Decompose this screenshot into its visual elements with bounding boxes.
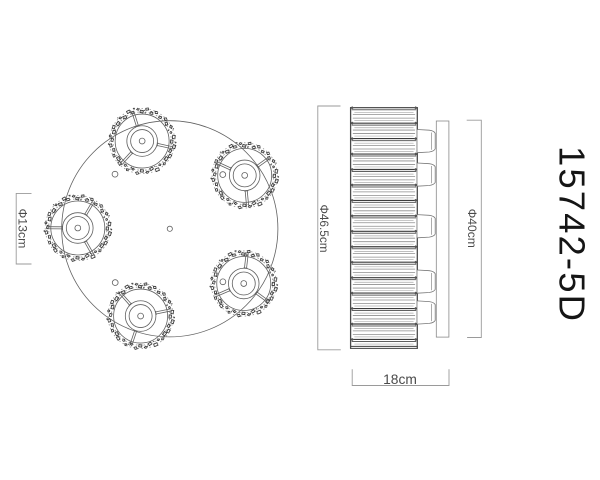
svg-text:Φ46.5cm: Φ46.5cm — [317, 204, 331, 252]
svg-text:Φ40cm: Φ40cm — [465, 209, 479, 248]
svg-text:18cm: 18cm — [383, 372, 417, 387]
svg-text:15742-5D: 15742-5D — [551, 146, 592, 323]
svg-text:Φ13cm: Φ13cm — [16, 208, 30, 248]
